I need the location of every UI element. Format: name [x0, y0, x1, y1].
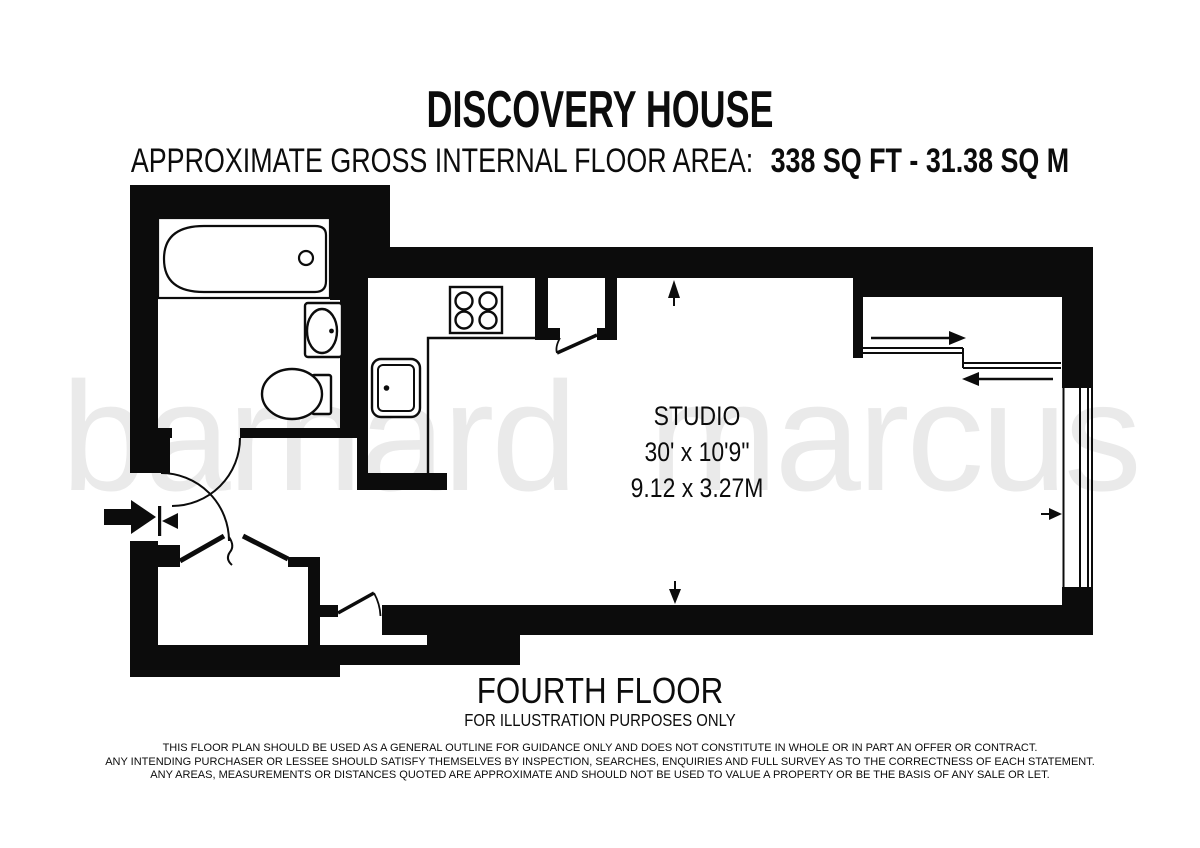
entrance-door-swing — [161, 473, 229, 541]
room-label: STUDIO 30' x 10'9" 9.12 x 3.27M — [269, 398, 1124, 506]
area-summary: APPROXIMATE GROSS INTERNAL FLOOR AREA:33… — [126, 142, 1074, 181]
wash-basin — [305, 303, 342, 357]
closet-bifold-doors — [180, 536, 288, 565]
bathtub — [158, 218, 330, 298]
disclaimer-line: ANY INTENDING PURCHASER OR LESSEE SHOULD… — [0, 756, 1200, 770]
room-size-metric: 9.12 x 3.27M — [269, 470, 1124, 506]
inner-door — [338, 593, 381, 616]
sliding-storage-recess — [863, 331, 1061, 386]
entrance-arrow — [104, 500, 156, 534]
illustration-note: FOR ILLUSTRATION PURPOSES ONLY — [90, 710, 1110, 731]
room-size-imperial: 30' x 10'9" — [269, 434, 1124, 470]
area-value: 338 SQ FT - 31.38 SQ M — [771, 142, 1070, 180]
hob — [450, 287, 502, 333]
area-label: APPROXIMATE GROSS INTERNAL FLOOR AREA: — [131, 142, 753, 180]
disclaimer-line: ANY AREAS, MEASUREMENTS OR DISTANCES QUO… — [0, 769, 1200, 783]
floor-label: FOURTH FLOOR — [78, 670, 1122, 712]
bathroom-door-swing — [172, 438, 240, 506]
dimension-arrow-up — [668, 280, 680, 298]
disclaimer: THIS FLOOR PLAN SHOULD BE USED AS A GENE… — [0, 742, 1200, 783]
cupboard-door — [556, 335, 597, 353]
floorplan-page: barnard marcus — [0, 0, 1200, 848]
disclaimer-line: THIS FLOOR PLAN SHOULD BE USED AS A GENE… — [0, 742, 1200, 756]
dimension-arrow-left — [162, 513, 178, 529]
dimension-tick — [158, 506, 161, 536]
dimension-arrow-down — [669, 589, 681, 604]
dimension-arrow-right — [1049, 508, 1062, 520]
room-name: STUDIO — [269, 398, 1124, 434]
page-title: DISCOVERY HOUSE — [186, 80, 1014, 140]
